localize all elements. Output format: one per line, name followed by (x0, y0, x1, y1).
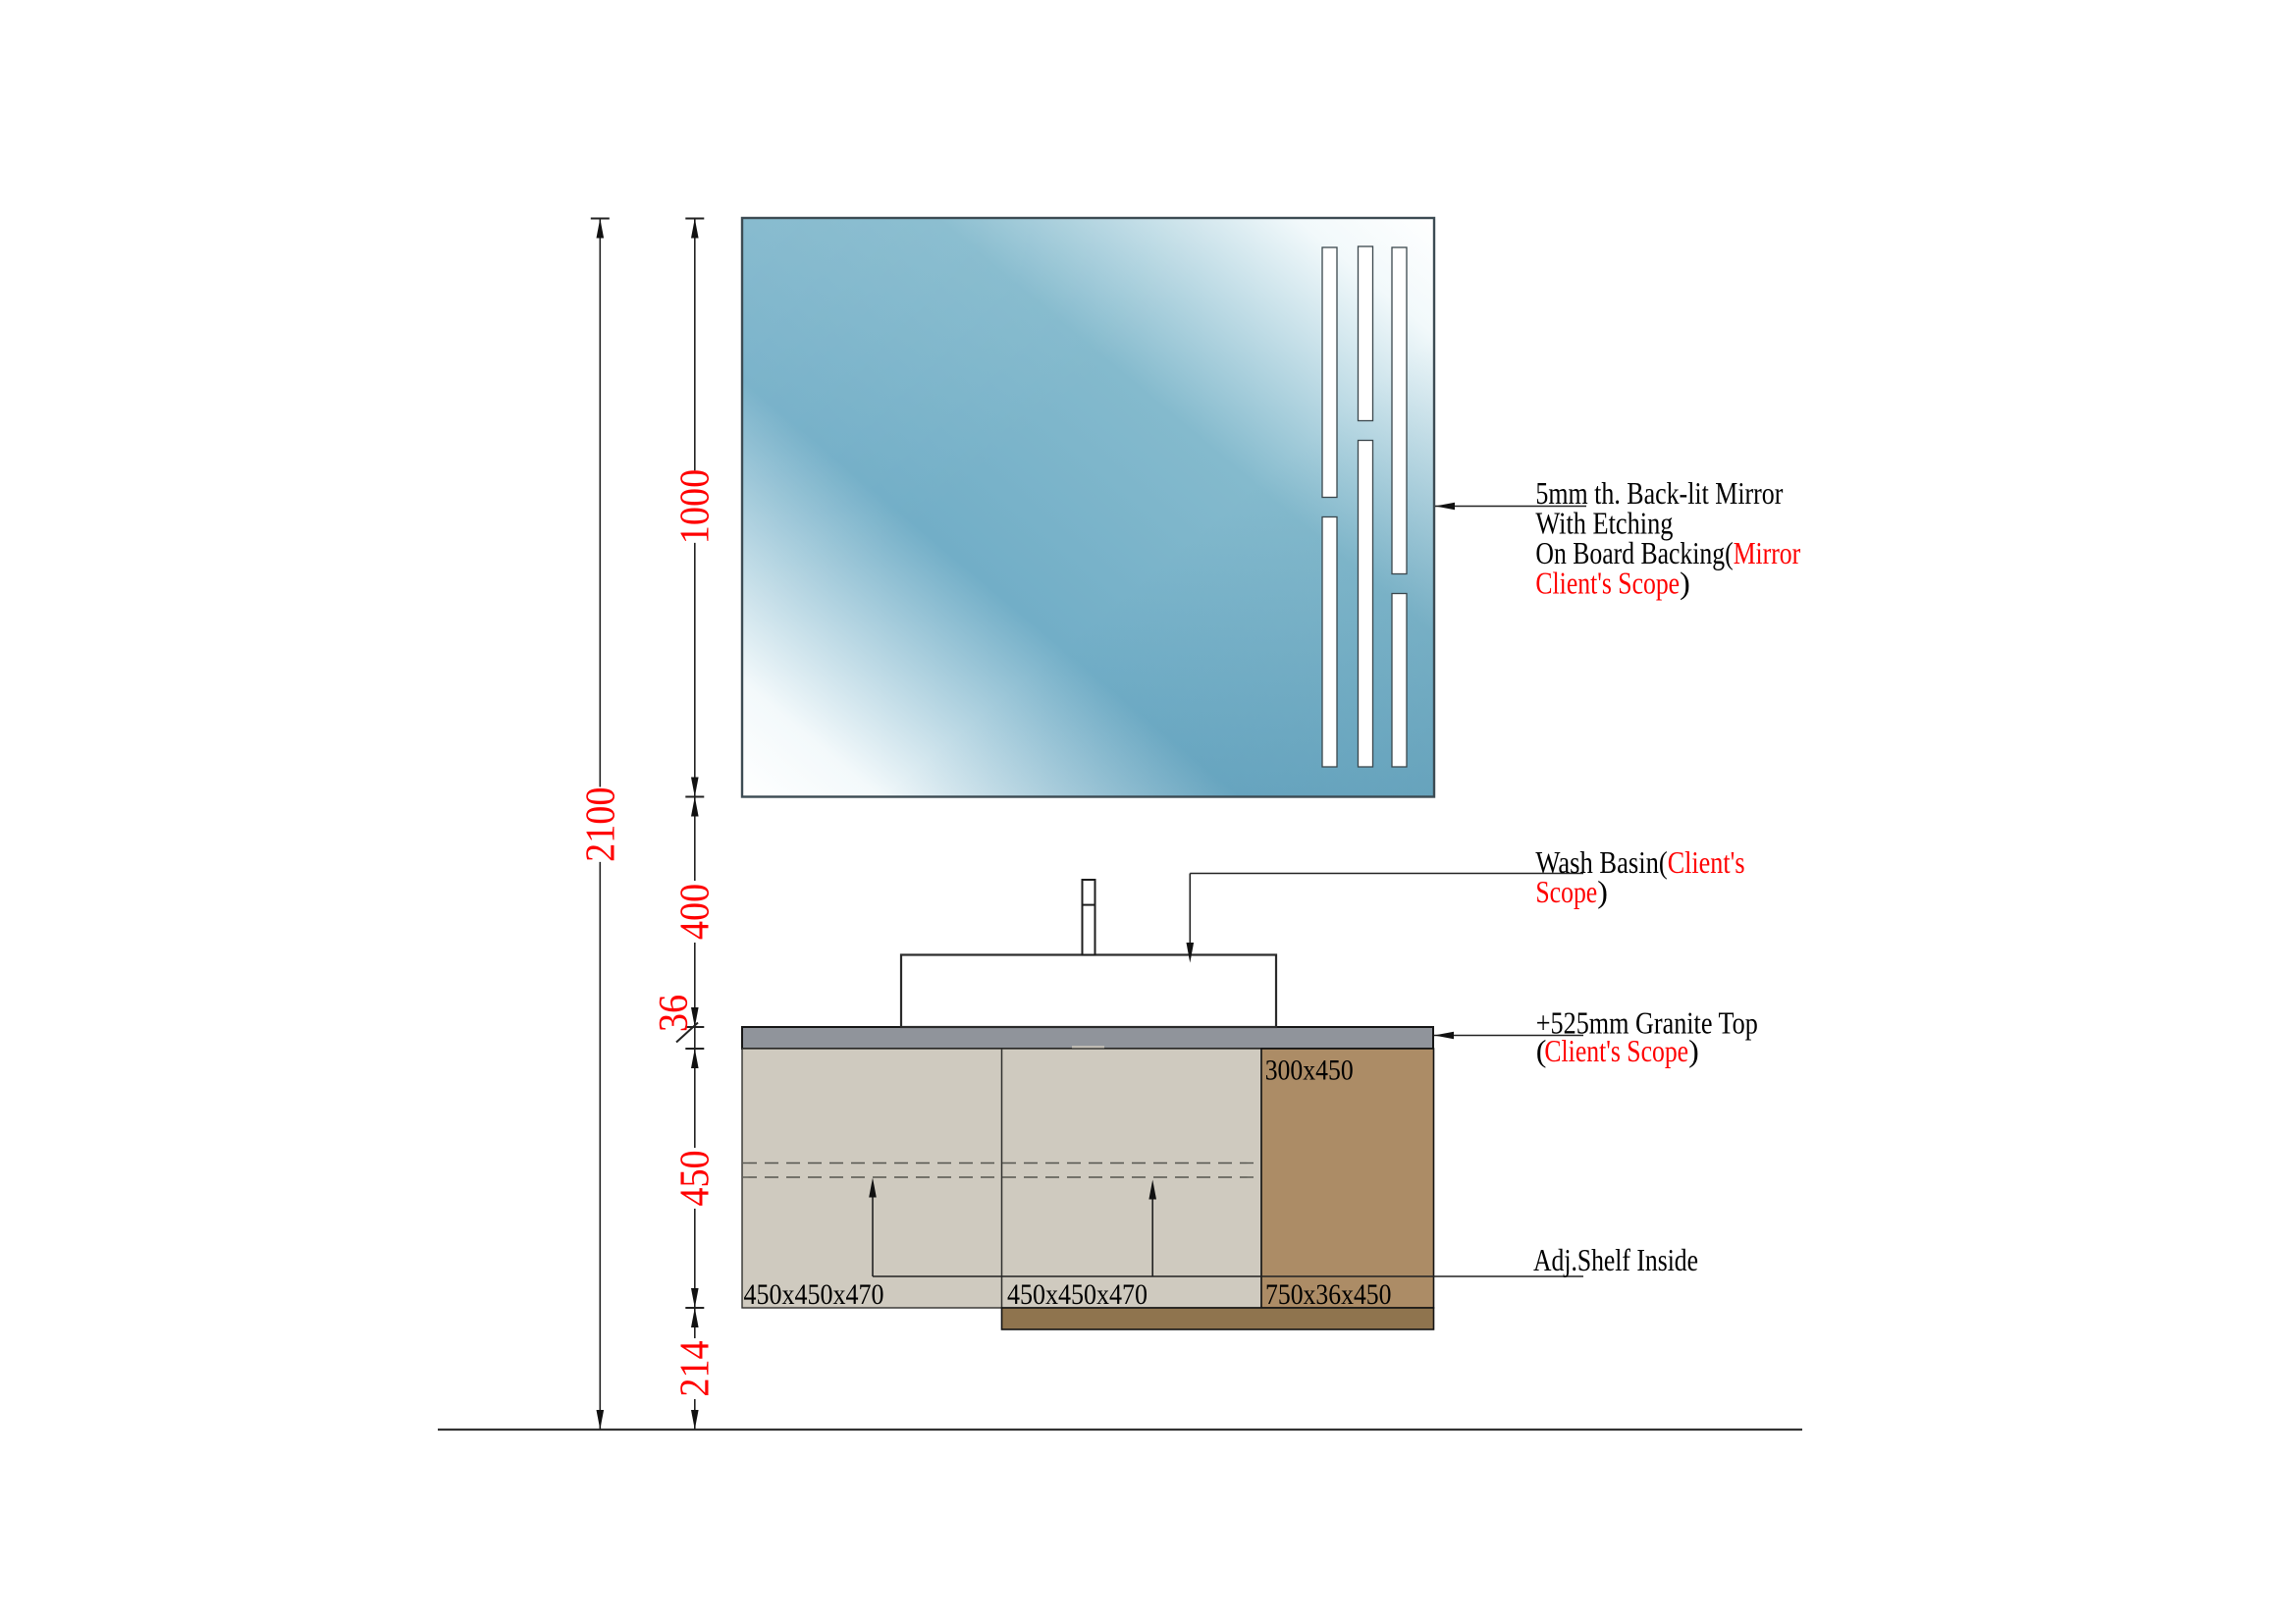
svg-text:): ) (1680, 566, 1690, 601)
svg-text:): ) (1597, 874, 1608, 909)
svg-text:300x450: 300x450 (1265, 1055, 1354, 1087)
svg-text:Client's Scope: Client's Scope (1544, 1033, 1688, 1068)
svg-text:450x450x470: 450x450x470 (744, 1278, 884, 1311)
svg-text:2100: 2100 (578, 787, 623, 862)
svg-text:214: 214 (673, 1340, 719, 1396)
svg-text:Scope: Scope (1535, 874, 1597, 909)
svg-text:450: 450 (673, 1150, 719, 1206)
svg-text:450x450x470: 450x450x470 (1007, 1278, 1148, 1311)
svg-text:Client's Scope: Client's Scope (1535, 566, 1680, 601)
svg-text:1000: 1000 (673, 469, 719, 544)
svg-text:Client's: Client's (1668, 844, 1745, 880)
svg-text:400: 400 (673, 884, 719, 940)
svg-text:750x36x450: 750x36x450 (1265, 1278, 1392, 1311)
svg-text:36: 36 (652, 995, 697, 1032)
svg-text:Mirror: Mirror (1734, 535, 1801, 570)
svg-text:): ) (1688, 1033, 1699, 1068)
svg-text:Adj.Shelf Inside: Adj.Shelf Inside (1533, 1242, 1698, 1277)
